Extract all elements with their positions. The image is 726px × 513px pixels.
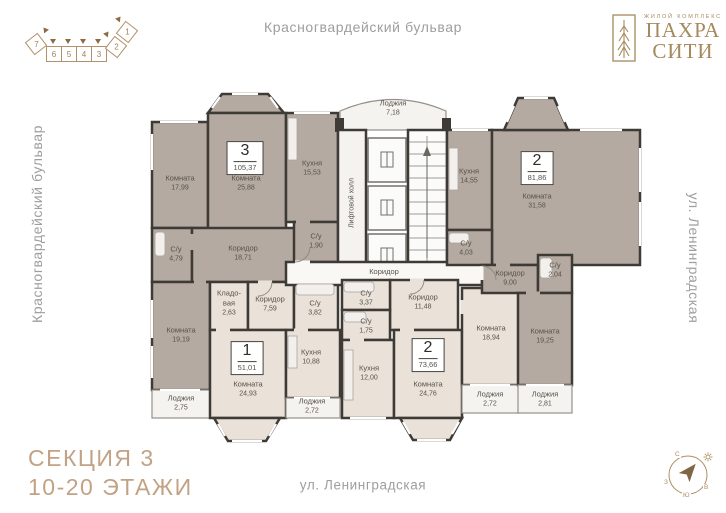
room-area: 17,99: [165, 183, 194, 192]
apartment-total-area: 73,66: [419, 359, 438, 369]
street-label-bottom: ул. Ленинградская: [300, 478, 426, 493]
room-name: Лоджия: [532, 390, 559, 400]
street-label-top: Красногвардейский бульвар: [264, 19, 462, 35]
room-area: 1,75: [359, 326, 373, 335]
room-area: 19,25: [530, 336, 559, 345]
room-name: С/у: [359, 289, 373, 299]
section-box-5[interactable]: 5: [61, 46, 77, 62]
room-label: Комната 19,25: [530, 327, 559, 346]
tree-icon: [610, 13, 638, 65]
room-area: 2,63: [213, 308, 245, 317]
apartment-total-area: 105,37: [234, 162, 257, 172]
section-floors: 10-20 ЭТАЖИ: [28, 473, 193, 502]
room-area: 1,90: [309, 241, 323, 250]
brand-name-line1: ПАХРА: [644, 20, 722, 41]
room-label: Кухня 15,53: [302, 159, 322, 178]
room-area: 2,72: [477, 399, 504, 408]
room-name: Коридор: [228, 244, 258, 254]
room-label: С/у 1,75: [359, 317, 373, 336]
room-name: С/у: [169, 245, 183, 255]
section-number: 1: [125, 28, 129, 37]
room-area: 4,79: [169, 254, 183, 263]
room-area: 12,00: [359, 373, 379, 382]
room-name: Комната: [166, 326, 195, 336]
section-number: 2: [114, 43, 118, 52]
room-label: Комната 24,93: [233, 380, 262, 399]
compass-icon: С В Ю З: [662, 447, 718, 503]
room-area: 14,55: [459, 176, 479, 185]
compass-north: С: [674, 451, 681, 458]
street-label-left: Красногвардейский бульвар: [29, 125, 45, 323]
room-area: 18,94: [476, 333, 505, 342]
room-area: 3,37: [359, 298, 373, 307]
room-label: Комната 19,19: [166, 326, 195, 345]
room-name: Кухня: [359, 364, 379, 374]
room-label: Комната 18,94: [476, 324, 505, 343]
room-label: Кухня 12,00: [359, 364, 379, 383]
entrance-marker-icon: [80, 39, 86, 44]
room-name: Лоджия: [299, 397, 326, 407]
room-area: 24,76: [413, 389, 442, 398]
apartment-number: 1: [238, 343, 257, 362]
room-label: Комната 17,99: [165, 174, 194, 193]
room-name: С/у: [308, 299, 322, 309]
room-area: 2,75: [168, 403, 195, 412]
compass-south: Ю: [682, 492, 691, 499]
brand-name-line2: СИТИ: [644, 41, 722, 62]
brand-logo: ЖИЛОЙ КОМПЛЕКС ПАХРА СИТИ: [610, 13, 722, 65]
room-label: Коридор 18,71: [228, 244, 258, 263]
room-area: 7,59: [255, 304, 285, 313]
section-box-7[interactable]: 7: [25, 33, 47, 55]
room-label: Комната 24,76: [413, 380, 442, 399]
room-area: 24,93: [233, 389, 262, 398]
room-area: 11,48: [408, 302, 438, 311]
room-label: Коридор: [369, 267, 399, 277]
apartment-total-area: 51,01: [238, 362, 257, 372]
room-label: Комната 31,58: [522, 192, 551, 211]
section-locator-diagram: 7 6 5 4 3 2 1: [16, 18, 156, 78]
sun-icon: [704, 453, 713, 462]
room-area: 19,19: [166, 335, 195, 344]
room-name: С/у: [309, 232, 323, 242]
room-label: С/у 3,82: [308, 299, 322, 318]
room-name: Коридор: [255, 295, 285, 305]
room-area: 10,88: [301, 357, 321, 366]
room-label: С/у 2,04: [548, 261, 562, 280]
room-area: 15,53: [302, 168, 322, 177]
apartment-number: 2: [419, 340, 438, 359]
room-name: Комната: [413, 380, 442, 390]
room-area: 3,82: [308, 308, 322, 317]
apartment-badge-3[interactable]: 3 105,37: [227, 141, 264, 175]
apartment-badge-1[interactable]: 1 51,01: [231, 341, 264, 375]
entrance-marker-icon: [50, 39, 56, 44]
room-name: Кухня: [302, 159, 322, 169]
room-label: С/у 1,90: [309, 232, 323, 251]
room-label: Лоджия 2,72: [299, 397, 326, 416]
entrance-marker-icon: [65, 39, 71, 44]
section-info: СЕКЦИЯ 3 10-20 ЭТАЖИ: [28, 444, 193, 503]
elevator-hall-label: Лифтовой холл: [349, 178, 356, 228]
apartment-badge-2-right[interactable]: 2 81,86: [521, 151, 554, 185]
room-name: Кухня: [301, 348, 321, 358]
room-label: Коридор 9,00: [495, 269, 525, 288]
room-name: Комната: [476, 324, 505, 334]
apartment-number: 3: [234, 143, 257, 162]
room-name: Комната: [231, 174, 260, 184]
room-label: Лоджия 2,72: [477, 390, 504, 409]
apartment-number: 2: [528, 153, 547, 172]
room-label: Комната 25,88: [231, 174, 260, 193]
room-name: С/у: [359, 317, 373, 327]
room-label: Коридор 11,48: [408, 293, 438, 312]
apartment-total-area: 81,86: [528, 172, 547, 182]
section-title: СЕКЦИЯ 3: [28, 444, 193, 473]
room-name: Комната: [530, 327, 559, 337]
room-area: 7,18: [380, 108, 407, 117]
floor-plan-page: Комната 17,99 Комната 25,88 Кухня 15,53 …: [0, 0, 726, 513]
room-area: 2,81: [532, 399, 559, 408]
section-number: 6: [52, 50, 56, 59]
room-name: Коридор: [408, 293, 438, 303]
section-box-4[interactable]: 4: [76, 46, 92, 62]
entrance-marker-icon: [41, 26, 49, 34]
compass-east: В: [703, 484, 709, 491]
room-area: 31,58: [522, 201, 551, 210]
room-name: Кладо-вая: [213, 289, 245, 309]
room-name: Комната: [522, 192, 551, 202]
section-number: 5: [67, 50, 71, 59]
section-number: 3: [97, 50, 101, 59]
room-label: С/у 4,79: [169, 245, 183, 264]
room-label: Кухня 10,88: [301, 348, 321, 367]
room-area: 4,03: [459, 248, 473, 257]
room-name: Комната: [165, 174, 194, 184]
section-box-6[interactable]: 6: [46, 46, 62, 62]
room-name: Лоджия: [168, 394, 195, 404]
room-name: С/у: [459, 239, 473, 249]
compass-west: З: [663, 479, 669, 486]
entrance-marker-icon: [103, 30, 111, 38]
section-number: 4: [82, 50, 86, 59]
room-label: С/у 3,37: [359, 289, 373, 308]
room-area: 25,88: [231, 183, 260, 192]
room-name: Комната: [233, 380, 262, 390]
room-label: С/у 4,03: [459, 239, 473, 258]
section-number: 7: [34, 40, 38, 49]
room-name: Коридор: [495, 269, 525, 279]
room-name: Коридор: [369, 267, 399, 277]
room-label: Лоджия 2,81: [532, 390, 559, 409]
room-label: Кладо-вая 2,63: [213, 289, 245, 318]
room-label: Коридор 7,59: [255, 295, 285, 314]
room-label: Лоджия 2,75: [168, 394, 195, 413]
entrance-marker-icon: [95, 39, 101, 44]
room-name: Кухня: [459, 167, 479, 177]
room-label: Кухня 14,55: [459, 167, 479, 186]
room-name: Лоджия: [380, 99, 407, 109]
room-area: 2,04: [548, 270, 562, 279]
room-label: Лоджия 7,18: [380, 99, 407, 118]
room-name: С/у: [548, 261, 562, 271]
apartment-badge-2-bottom[interactable]: 2 73,66: [412, 338, 445, 372]
room-area: 18,71: [228, 253, 258, 262]
room-name: Лоджия: [477, 390, 504, 400]
street-label-right: ул. Ленинградская: [686, 193, 702, 324]
room-area: 2,72: [299, 406, 326, 415]
room-area: 9,00: [495, 278, 525, 287]
